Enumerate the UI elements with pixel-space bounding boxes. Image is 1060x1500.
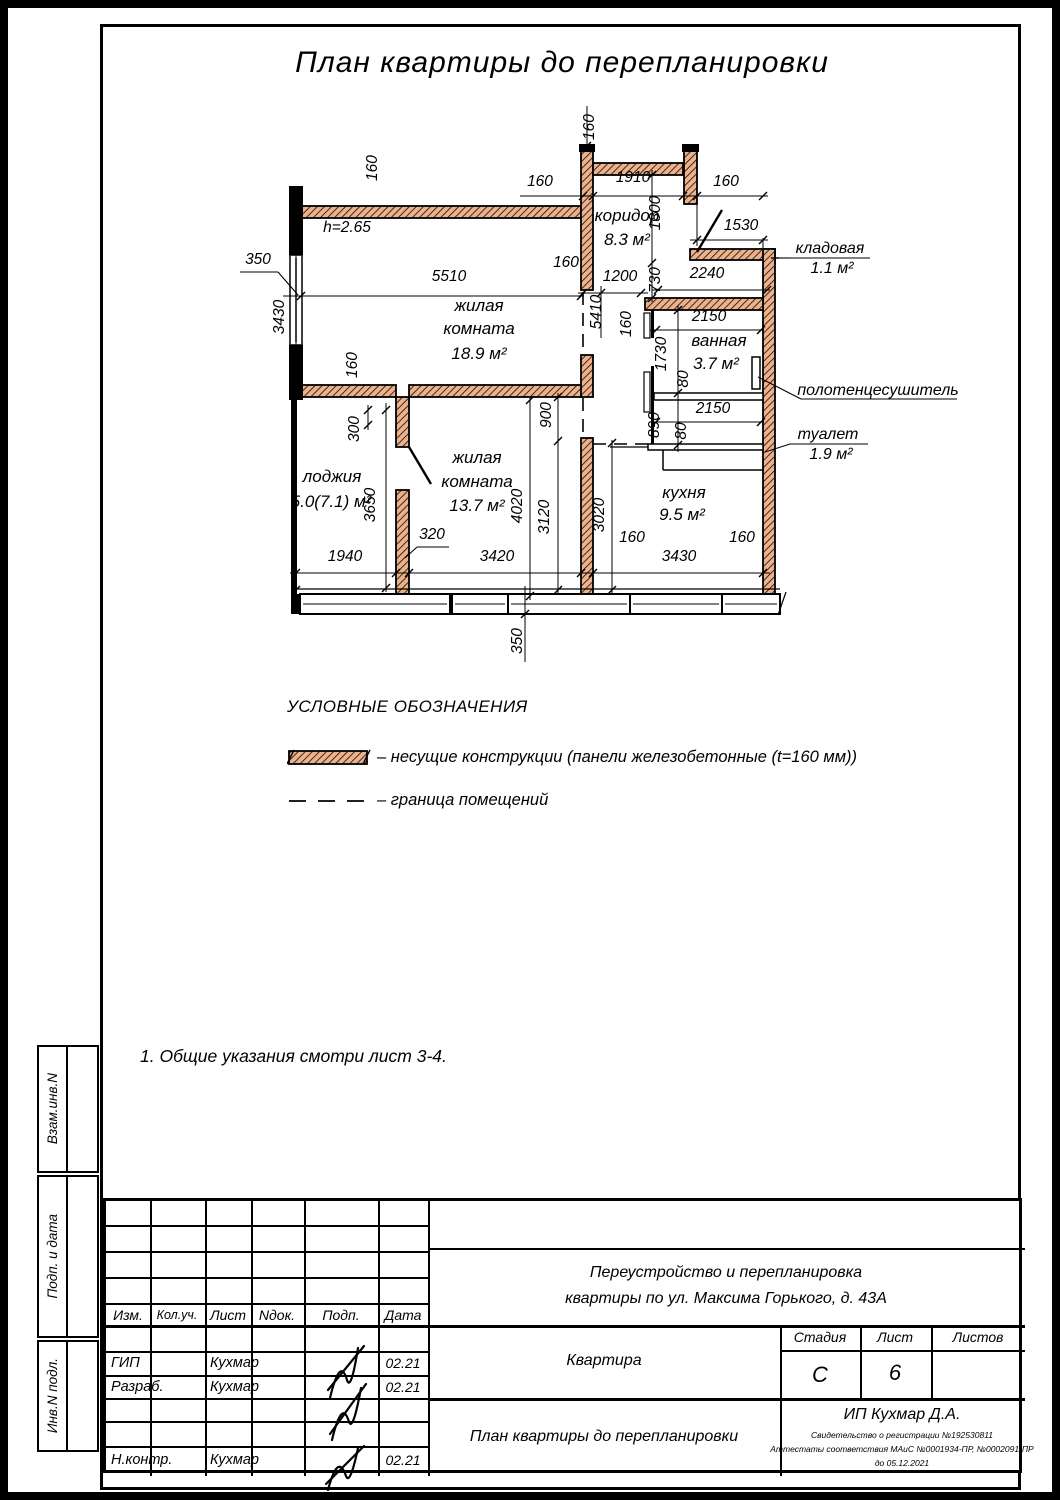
dimension-label: h=2.65 [323, 219, 371, 236]
dimension-label: 160 [527, 173, 553, 190]
dimension-label: 1940 [328, 548, 363, 565]
row-nkontr-role: Н.контр. [111, 1452, 172, 1468]
row-nkontr-name: Кухмар [210, 1452, 259, 1468]
dimension-label: 80 [673, 422, 690, 440]
callout-label: 1.9 м² [810, 446, 854, 463]
room-label: жилая [453, 296, 503, 315]
side-stamp-vzam-label: Взам.инв.N [45, 1073, 60, 1144]
dimension-label: 160 [619, 529, 645, 546]
project-line2: квартиры по ул. Максима Горького, д. 43А [565, 1290, 887, 1308]
dimension-label: 2150 [695, 400, 731, 417]
bottom-windows [296, 589, 786, 615]
dimension-label: 5410 [588, 294, 605, 329]
dimension-label: 890 [646, 412, 663, 438]
callout-label: полотенцесушитель [797, 382, 958, 399]
stage-label: Стадия [794, 1329, 846, 1345]
dimension-label: 3430 [271, 299, 288, 334]
dimension-label: 160 [344, 352, 361, 378]
dimension-label: 350 [509, 628, 526, 654]
row-razrab-name: Кухмар [210, 1379, 259, 1395]
stage-value: С [812, 1362, 828, 1388]
room-label: коридор [595, 206, 660, 225]
row-razrab-date: 02.21 [385, 1379, 420, 1395]
callout-label: 1.1 м² [811, 260, 855, 277]
row-nkontr-date: 02.21 [385, 1452, 420, 1468]
dimension-label: 350 [245, 251, 271, 268]
room-label: 18.9 м² [451, 344, 507, 363]
dimension-label: 160 [553, 254, 579, 271]
room-label: комната [441, 472, 512, 491]
row-gip-date: 02.21 [385, 1355, 420, 1371]
dimension-label: 5510 [432, 268, 467, 285]
dimension-label: 1910 [616, 169, 651, 186]
dimension-label: 160 [364, 155, 381, 181]
dimension-label: 300 [346, 416, 363, 442]
side-stamp-podp-label: Подп. и дата [45, 1214, 60, 1299]
room-label: лоджия [302, 467, 362, 486]
room-label: 3.7 м² [693, 354, 740, 373]
col-data: Дата [385, 1307, 422, 1323]
col-koluch: Кол.уч. [157, 1308, 198, 1322]
firm-cert-3: до 05.12.2021 [875, 1458, 929, 1468]
dimension-label: 2240 [689, 265, 725, 282]
dimension-label: 160 [729, 529, 755, 546]
dimension-label: 1730 [653, 336, 670, 371]
row-gip-role: ГИП [111, 1355, 140, 1371]
room-label: 5.0(7.1) м² [291, 492, 373, 511]
dimension-label: 80 [675, 370, 692, 388]
dimension-label: 160 [618, 311, 635, 337]
col-izm: Изм. [113, 1307, 143, 1323]
firm-name: ИП Кухмар Д.А. [844, 1406, 961, 1424]
room-label: ванная [691, 331, 746, 350]
dimension-label: 3020 [591, 497, 608, 532]
signature-nkontr [320, 1438, 374, 1500]
side-stamp-vzam: Взам.инв.N [37, 1045, 99, 1173]
room-label: кухня [662, 483, 705, 502]
dimension-label: 1530 [724, 217, 759, 234]
drawing-sheet: { "sheet": { "title": "План квартиры до … [0, 0, 1060, 1500]
floor-plan: 1601601910160153018007302240120016054101… [0, 0, 1060, 700]
row-gip-name: Кухмар [210, 1355, 259, 1371]
col-list: Лист [210, 1307, 246, 1323]
callout-label: кладовая [796, 240, 865, 257]
sheet-label: Лист [877, 1329, 913, 1345]
towel-rail [752, 357, 760, 389]
dimension-label: 730 [647, 267, 664, 293]
firm-cert-1: Свидетельство о регистрации №192530811 [811, 1430, 993, 1440]
room-label: 9.5 м² [659, 505, 706, 524]
dimension-label: 320 [419, 526, 445, 543]
dimension-label: 3420 [480, 548, 515, 565]
project-line1: Переустройство и перепланировка [590, 1264, 862, 1282]
dimension-label: 3120 [536, 499, 553, 534]
doc-title: План квартиры до перепланировки [470, 1428, 738, 1446]
col-podp: Подп. [322, 1307, 359, 1323]
dimension-label: 1200 [603, 268, 638, 285]
signature-gip-razrab [322, 1332, 374, 1448]
side-stamp-inv-label: Инв.N подл. [45, 1358, 60, 1433]
room-label: 8.3 м² [604, 230, 651, 249]
dimension-label: 3430 [662, 548, 697, 565]
object-name: Квартира [566, 1352, 641, 1370]
bearing-walls [300, 150, 775, 614]
title-block: Изм. Кол.уч. Лист Nдок. Подп. Дата ГИП К… [103, 1198, 1022, 1473]
firm-cert-2: Аттестаты соответствия МАиС №0001934-ПР,… [770, 1444, 1033, 1454]
row-razrab-role: Разраб. [111, 1379, 163, 1395]
dimension-label: 160 [581, 114, 598, 140]
dimension-label: 160 [713, 173, 739, 190]
side-stamp-podp: Подп. и дата [37, 1175, 99, 1338]
sheets-label: Листов [953, 1329, 1004, 1345]
dimension-label: 2150 [691, 308, 727, 325]
dimension-label: 900 [538, 402, 555, 428]
room-label: 13.7 м² [449, 496, 505, 515]
col-ndok: Nдок. [259, 1307, 295, 1323]
side-stamp-inv: Инв.N подл. [37, 1340, 99, 1452]
dimension-label: 4020 [509, 488, 526, 523]
callout-label: туалет [798, 426, 859, 443]
room-label: жилая [451, 448, 501, 467]
room-label: комната [443, 319, 514, 338]
sheet-number: 6 [889, 1360, 901, 1386]
